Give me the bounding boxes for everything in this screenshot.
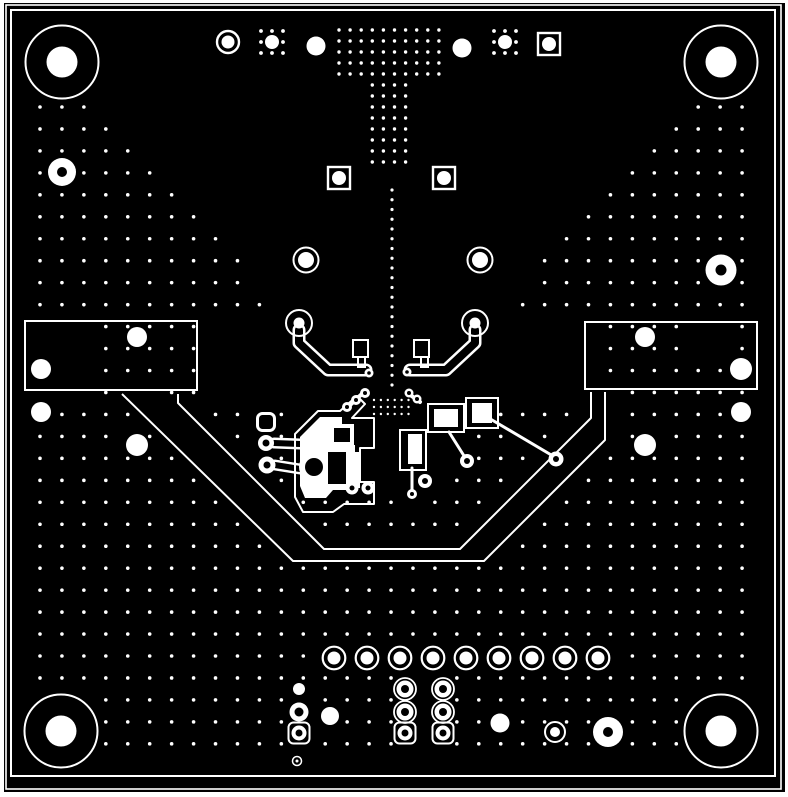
annulus-pad: [460, 454, 474, 468]
via-donut: [706, 255, 737, 286]
annulus-pad: [549, 452, 564, 467]
annulus-pad: [432, 678, 454, 700]
annulus-pad: [259, 457, 276, 474]
annulus-pad: [362, 482, 375, 495]
annulus-pad: [413, 395, 422, 404]
annulus-pad: [346, 482, 359, 495]
annulus-pad: [342, 402, 352, 412]
annulus-pad: [290, 703, 309, 722]
via-donut: [593, 717, 623, 747]
annulus-pad: [432, 701, 454, 723]
board-frame: [4, 3, 785, 792]
annulus-pad: [365, 369, 374, 378]
vertical-dotted-line: [390, 188, 393, 386]
pcb-screenshot: [0, 0, 788, 797]
via-donut: [48, 158, 76, 186]
annulus-pad: [403, 368, 412, 377]
annulus-pad: [360, 388, 370, 398]
annulus-pad: [258, 435, 274, 451]
annulus-pad: [418, 474, 432, 488]
pcb-copper-layer-artwork: [0, 0, 788, 797]
annulus-pad: [407, 489, 417, 499]
annulus-pad: [394, 678, 416, 700]
annulus-pad: [405, 389, 414, 398]
annulus-pad: [351, 395, 361, 405]
annulus-pad: [394, 701, 416, 723]
